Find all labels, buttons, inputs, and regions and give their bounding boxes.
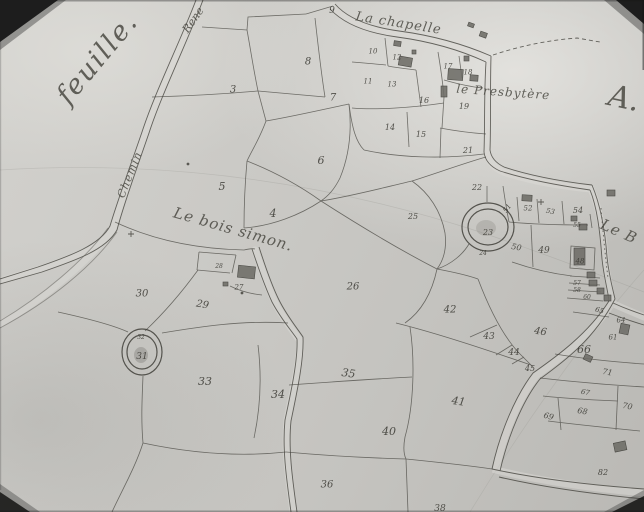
parcel-number-53: 53 <box>545 207 556 217</box>
parcel-number-57: 57 <box>573 280 581 287</box>
place-label-le-presbytere: le Presbytère <box>456 82 551 103</box>
place-label-road-name-top: Rene <box>179 4 207 36</box>
map-photo-stage: feuille.ReneLa chapellele PresbytèreA.Ch… <box>0 0 644 512</box>
parcel-number-70: 70 <box>622 401 634 412</box>
crease-lines <box>0 168 644 512</box>
place-labels: feuille.ReneLa chapellele PresbytèreA.Ch… <box>49 4 643 255</box>
parcel-number-50: 50 <box>511 242 523 253</box>
parcel-number-31: 31 <box>136 352 147 362</box>
parcel-number-18: 18 <box>464 68 473 76</box>
parcel-number-13: 13 <box>388 80 397 88</box>
parcel-number-82: 82 <box>598 468 608 477</box>
place-label-section-letter: A. <box>602 78 643 119</box>
parcel-number-67: 67 <box>580 388 591 398</box>
cross-mark-icon <box>128 231 134 237</box>
parcel-number-6: 6 <box>318 154 325 167</box>
parcel-numbers: 3456789101211131614151718192122232425262… <box>136 6 634 512</box>
parcel-number-3: 3 <box>230 85 236 96</box>
parcel-number-46: 46 <box>532 326 548 339</box>
parcel-number-58: 58 <box>573 287 581 294</box>
parcel-number-30: 30 <box>136 289 149 300</box>
parcel-number-25: 25 <box>407 212 418 221</box>
parcel-number-41: 41 <box>450 394 467 409</box>
parcel-number-34: 34 <box>271 388 285 401</box>
parcel-number-42: 42 <box>443 305 457 316</box>
parcel-number-15: 15 <box>416 130 426 139</box>
parcel-number-16: 16 <box>419 96 429 105</box>
parcel-number-40: 40 <box>381 425 396 438</box>
parcel-number-60: 60 <box>583 294 591 301</box>
parcel-number-10: 10 <box>369 47 378 55</box>
parcel-number-14: 14 <box>385 123 395 132</box>
parcel-number-26: 26 <box>346 282 360 293</box>
parcel-number-32: 32 <box>137 334 145 341</box>
parcel-number-24: 24 <box>478 250 487 257</box>
parcel-number-29: 29 <box>194 298 210 311</box>
parcel-number-9: 9 <box>329 6 335 16</box>
place-label-feuille: feuille. <box>49 7 145 113</box>
parcel-number-23: 23 <box>482 228 493 237</box>
parcel-number-48: 48 <box>575 257 585 265</box>
parcel-number-49: 49 <box>537 246 550 256</box>
parcel-number-43: 43 <box>482 332 495 342</box>
parcel-number-28: 28 <box>214 263 223 270</box>
parcel-number-64: 64 <box>617 316 626 324</box>
parcel-number-45: 45 <box>524 364 535 373</box>
parcel-number-36: 36 <box>321 480 334 491</box>
parcel-number-71: 71 <box>602 367 614 378</box>
parcel-number-68: 68 <box>577 406 589 417</box>
parcel-number-61: 61 <box>609 333 618 341</box>
parcel-number-17: 17 <box>444 62 453 70</box>
parcel-number-51: 51 <box>502 202 514 214</box>
parcel-number-52: 52 <box>524 204 533 212</box>
parcel-number-27: 27 <box>234 283 244 291</box>
place-label-le-bois-simon: Le bois simon. <box>170 203 295 255</box>
cross-mark-icon <box>538 199 544 205</box>
dot-mark-icon <box>241 292 244 295</box>
parcel-number-7: 7 <box>330 93 337 104</box>
parcel-number-66: 66 <box>577 343 591 356</box>
parcel-number-8: 8 <box>305 57 311 68</box>
cadastral-map: feuille.ReneLa chapellele PresbytèreA.Ch… <box>0 0 644 512</box>
parcel-number-21: 21 <box>462 146 473 155</box>
parcel-number-69: 69 <box>543 411 555 422</box>
parcel-number-11: 11 <box>364 77 373 85</box>
parcel-number-4: 4 <box>269 207 277 220</box>
parcel-number-44: 44 <box>507 348 520 358</box>
parcel-number-5: 5 <box>219 180 226 193</box>
parcel-number-55: 55 <box>573 222 581 229</box>
place-label-chemin: Chemin <box>115 150 145 200</box>
parcel-number-12: 12 <box>393 53 402 61</box>
parcel-number-19: 19 <box>459 102 469 111</box>
parcel-number-54: 54 <box>573 206 583 215</box>
parcel-number-35: 35 <box>341 366 357 381</box>
parcel-number-33: 33 <box>198 375 212 388</box>
dot-mark-icon <box>187 163 190 166</box>
parcel-number-22: 22 <box>471 183 482 192</box>
